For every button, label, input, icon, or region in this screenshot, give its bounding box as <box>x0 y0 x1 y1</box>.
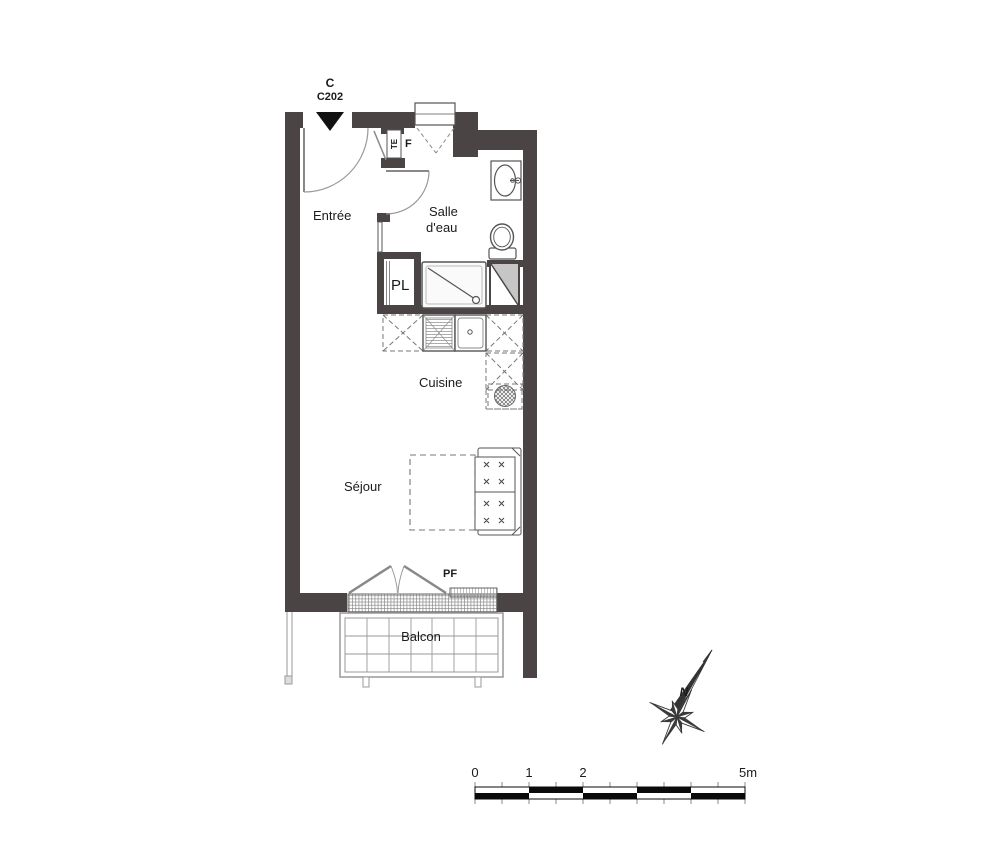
washbasin <box>491 161 521 200</box>
floor-plan-page: C C202 Entrée Salle d'eau TE F PL Cuisin… <box>0 0 1000 857</box>
french-door-leaf-left <box>349 566 391 593</box>
floor-plan-drawing: C C202 Entrée Salle d'eau TE F PL Cuisin… <box>0 0 1000 857</box>
scale-label-2: 2 <box>579 765 586 780</box>
scale-label-0: 0 <box>471 765 478 780</box>
annotation-pl: PL <box>391 277 409 294</box>
toilet <box>489 224 516 259</box>
unit-number: C202 <box>317 91 343 103</box>
window-swing-dash-left <box>417 128 436 153</box>
wall-partition-lower <box>377 252 384 314</box>
french-window <box>348 566 497 612</box>
wall-top-right-block <box>453 112 478 157</box>
scale-bar: 0 1 2 5m <box>471 765 757 804</box>
window-f <box>415 103 455 153</box>
washing-machine <box>488 384 522 409</box>
annotation-f: F <box>405 138 412 150</box>
unit-letter: C <box>326 76 335 90</box>
annotation-te: TE <box>390 138 399 149</box>
balcony <box>285 612 503 687</box>
room-label-sejour: Séjour <box>344 479 382 494</box>
balcony-post <box>475 677 481 687</box>
entrance-door <box>304 128 368 192</box>
room-label-entree: Entrée <box>313 208 351 223</box>
wall-left <box>285 112 300 612</box>
sofa-cushion <box>475 457 515 492</box>
window-swing-dash-right <box>436 128 454 153</box>
compass-north-label: N <box>680 685 689 699</box>
duct-shaft <box>490 263 519 306</box>
room-label-cuisine: Cuisine <box>419 375 462 390</box>
wall-top-left <box>285 112 303 128</box>
entrance-door-swing-arc <box>304 128 368 192</box>
sofa-cushion <box>475 492 515 530</box>
entrance-marker-triangle <box>316 112 344 131</box>
room-label-balcon: Balcon <box>401 629 441 644</box>
bathroom-door <box>386 171 429 214</box>
kitchen-sink <box>455 315 486 351</box>
closet-door <box>387 261 390 305</box>
side-rail-foot <box>285 676 292 684</box>
wall-bottom-right <box>497 593 537 612</box>
compass-rose: N <box>650 650 712 744</box>
wall-bottom-left <box>285 593 347 612</box>
scale-label-1: 1 <box>525 765 532 780</box>
compass-star-icon <box>650 690 705 745</box>
annotation-pf: PF <box>443 568 457 580</box>
partition-thin-section <box>378 222 382 252</box>
shower-drain-icon <box>473 297 480 304</box>
sofa <box>475 448 521 535</box>
french-door-arc-right <box>398 566 404 593</box>
wall-pl-right <box>414 252 421 314</box>
bathroom-door-swing-arc <box>386 171 429 214</box>
hob <box>423 315 455 351</box>
wall-top-mid <box>352 112 415 128</box>
kitchen-counters <box>383 315 523 409</box>
room-label-salle-deau-line2: d'eau <box>426 220 457 235</box>
wall-bath-north <box>478 130 537 150</box>
wall-te-stub-bottom <box>381 158 405 168</box>
room-label-salle-deau-line1: Salle <box>429 204 458 219</box>
shower <box>422 262 486 308</box>
technical-box-door <box>374 131 386 160</box>
french-door-arc-left <box>391 566 398 593</box>
table-dashed <box>410 455 475 530</box>
fixed-pane <box>450 588 497 597</box>
balcony-post <box>363 677 369 687</box>
french-door-leaf-right <box>404 566 446 593</box>
scale-label-5m: 5m <box>739 765 757 780</box>
